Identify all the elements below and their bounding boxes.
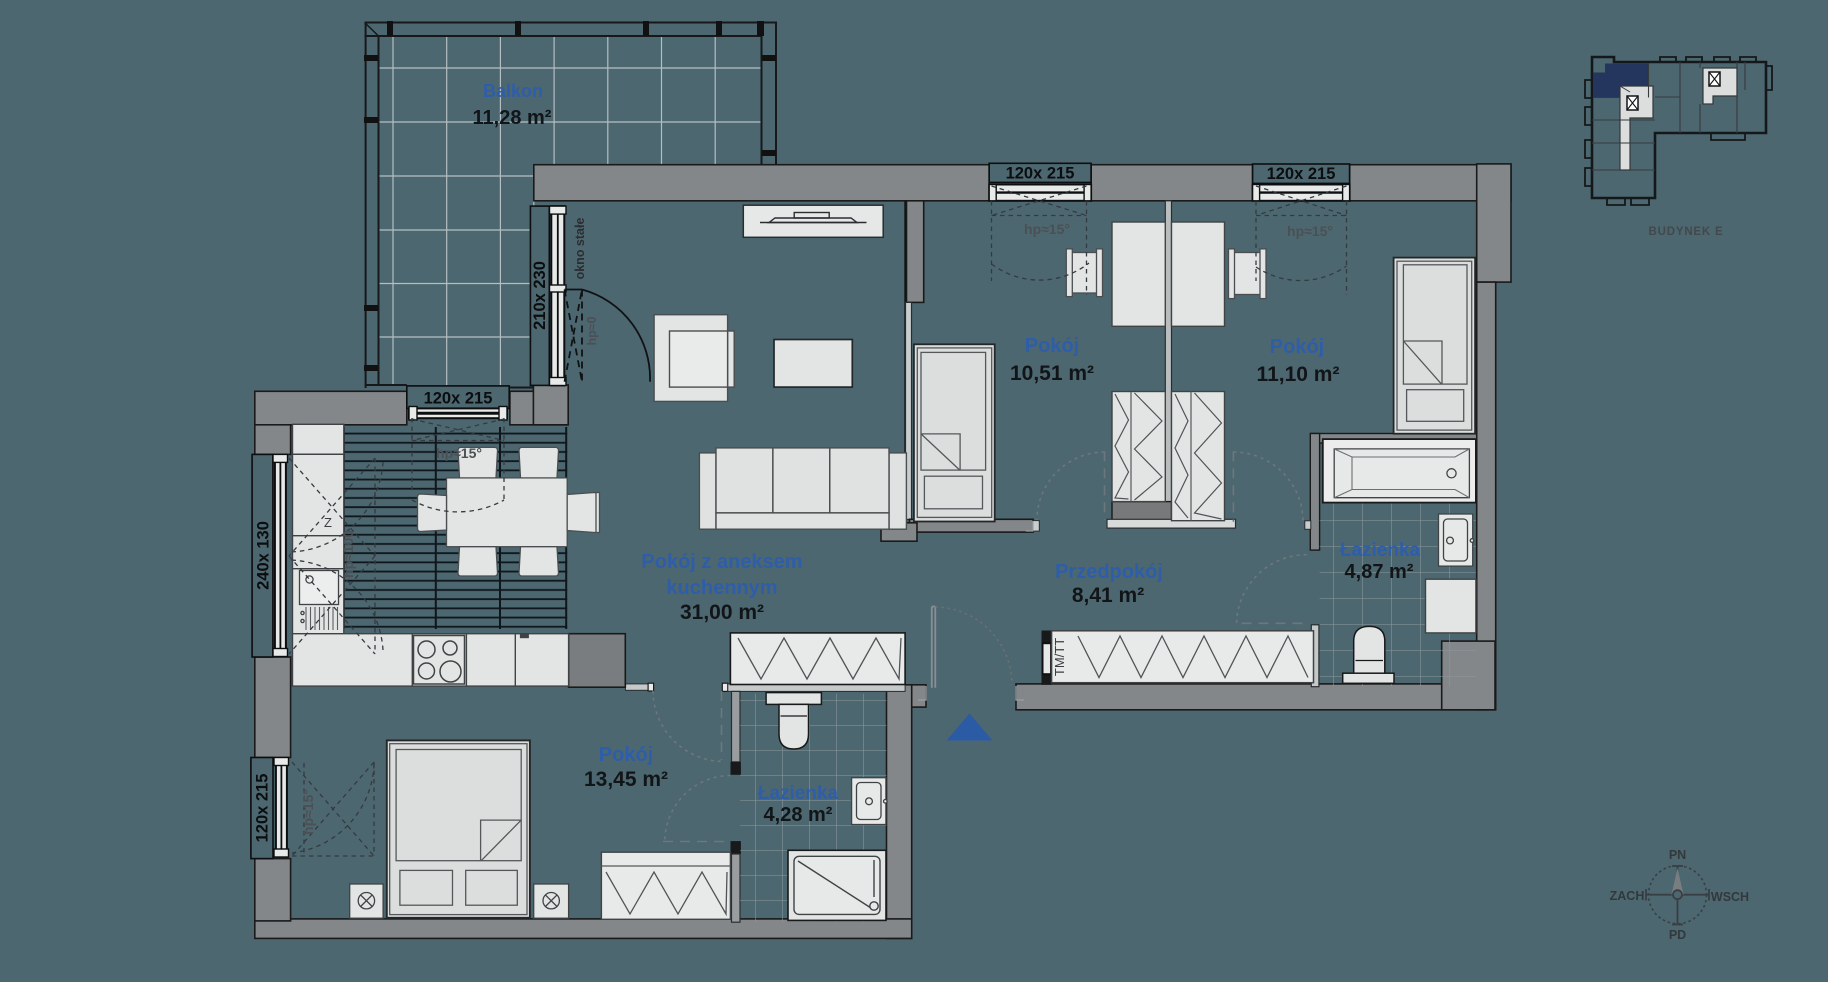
svg-text:Balkon: Balkon — [483, 81, 543, 101]
svg-text:4,87 m²: 4,87 m² — [1345, 561, 1414, 583]
svg-text:120x 215: 120x 215 — [1006, 165, 1075, 183]
svg-text:hp≈0: hp≈0 — [585, 316, 599, 345]
svg-text:Pokój z aneksem: Pokój z aneksem — [641, 551, 802, 573]
svg-text:kuchennym: kuchennym — [666, 577, 777, 599]
svg-text:hp≈100: hp≈100 — [340, 530, 356, 578]
svg-text:11,10 m²: 11,10 m² — [1257, 363, 1340, 386]
svg-text:hp≈15°: hp≈15° — [1024, 221, 1070, 237]
svg-text:okno stałe: okno stałe — [573, 218, 587, 280]
svg-text:ZACH: ZACH — [1610, 889, 1645, 903]
svg-text:Pokój: Pokój — [1025, 335, 1079, 357]
svg-text:Łazienka: Łazienka — [758, 783, 839, 804]
svg-text:31,00 m²: 31,00 m² — [680, 601, 764, 624]
svg-text:TM/TT: TM/TT — [1052, 638, 1067, 676]
svg-text:4,28 m²: 4,28 m² — [764, 804, 833, 826]
svg-text:120x 215: 120x 215 — [1267, 165, 1336, 183]
svg-text:hp≈15°: hp≈15° — [436, 445, 482, 461]
svg-text:120x 215: 120x 215 — [254, 774, 272, 843]
svg-text:PD: PD — [1669, 928, 1686, 942]
svg-text:Pokój: Pokój — [599, 744, 653, 766]
svg-text:PN: PN — [1669, 848, 1686, 862]
svg-text:11,28 m²: 11,28 m² — [473, 107, 552, 129]
svg-text:13,45 m²: 13,45 m² — [584, 768, 668, 791]
svg-text:210x 230: 210x 230 — [531, 261, 549, 330]
svg-text:WSCH: WSCH — [1711, 890, 1749, 904]
svg-text:8,41 m²: 8,41 m² — [1072, 584, 1144, 607]
svg-text:hp≈15°: hp≈15° — [300, 789, 316, 835]
svg-text:Łazienka: Łazienka — [1340, 540, 1421, 561]
svg-text:10,51 m²: 10,51 m² — [1010, 362, 1094, 385]
svg-text:120x 215: 120x 215 — [424, 390, 493, 408]
svg-text:240x 130: 240x 130 — [255, 521, 273, 590]
svg-text:Z: Z — [324, 515, 332, 530]
svg-text:hp≈15°: hp≈15° — [1287, 223, 1333, 239]
svg-text:BUDYNEK E: BUDYNEK E — [1649, 226, 1724, 238]
svg-text:Pokój: Pokój — [1270, 336, 1324, 358]
svg-text:Przedpokój: Przedpokój — [1055, 561, 1163, 583]
